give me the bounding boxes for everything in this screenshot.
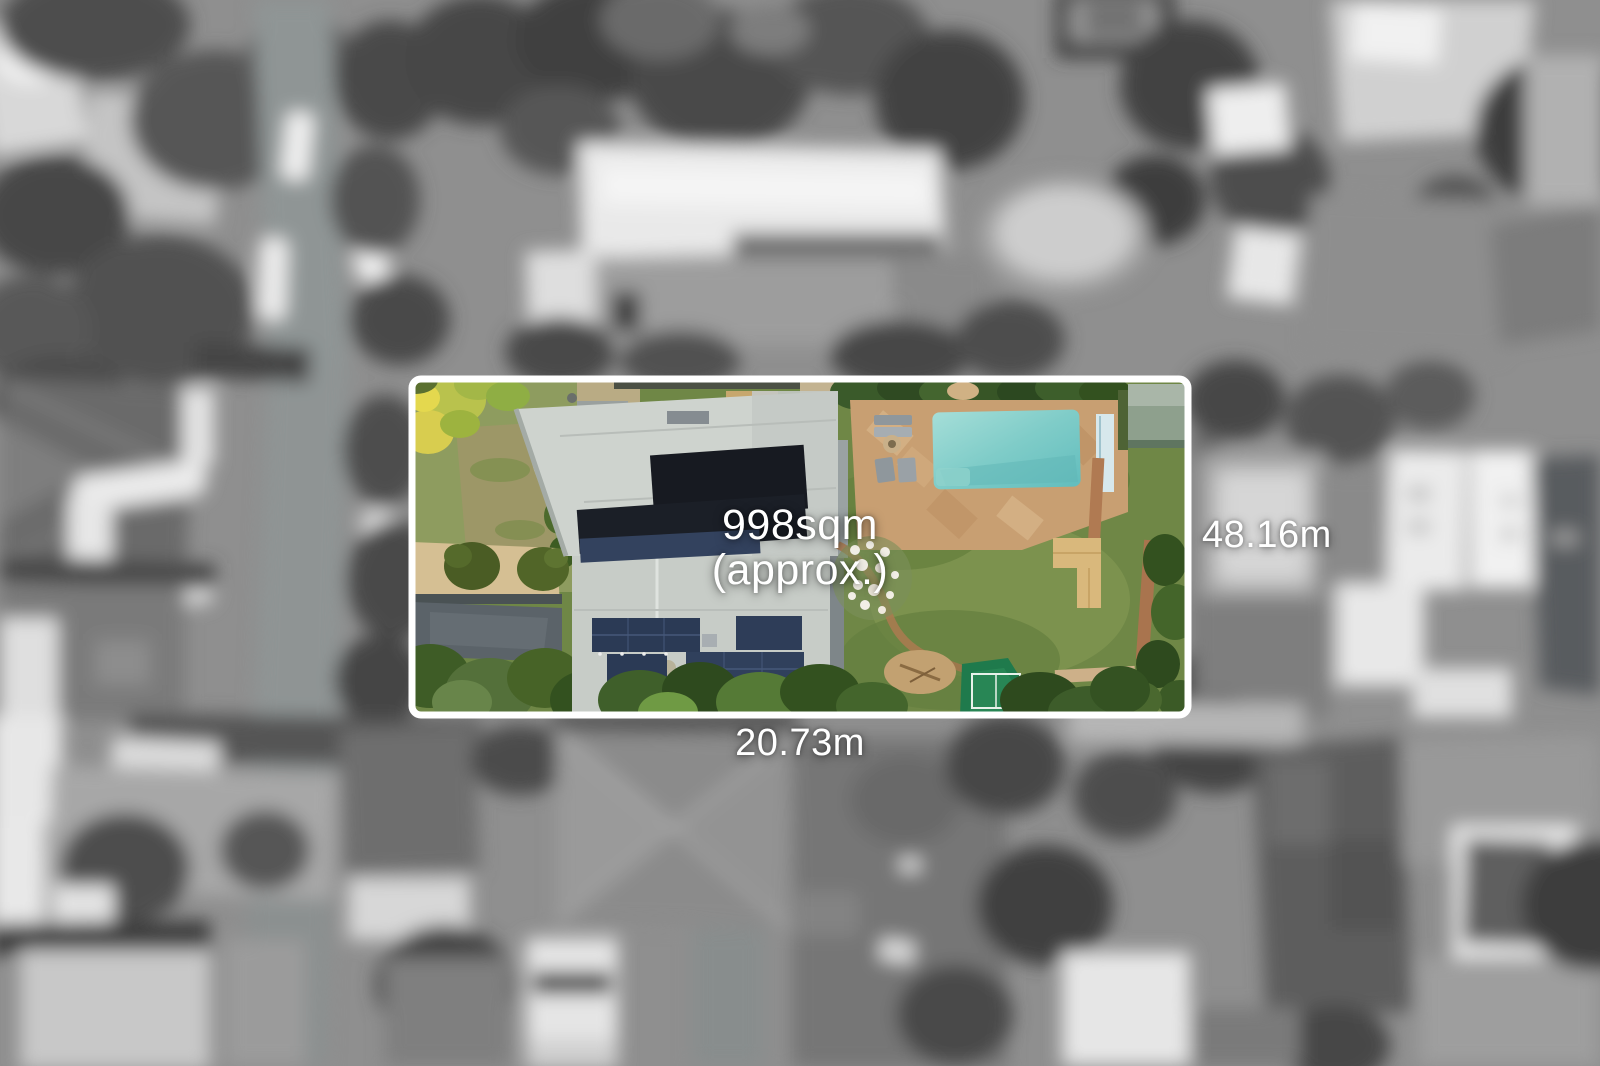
frontage-dimension-label: 20.73m: [735, 722, 865, 765]
garden-shed: [1118, 384, 1186, 450]
area-qualifier: (approx.): [712, 548, 889, 593]
side-dimension-label: 48.16m: [1202, 514, 1332, 557]
area-value: 998sqm: [712, 503, 889, 548]
area-label: 998sqm (approx.): [712, 503, 889, 592]
aerial-property-photo: 998sqm (approx.) 48.16m 20.73m: [0, 0, 1600, 1066]
